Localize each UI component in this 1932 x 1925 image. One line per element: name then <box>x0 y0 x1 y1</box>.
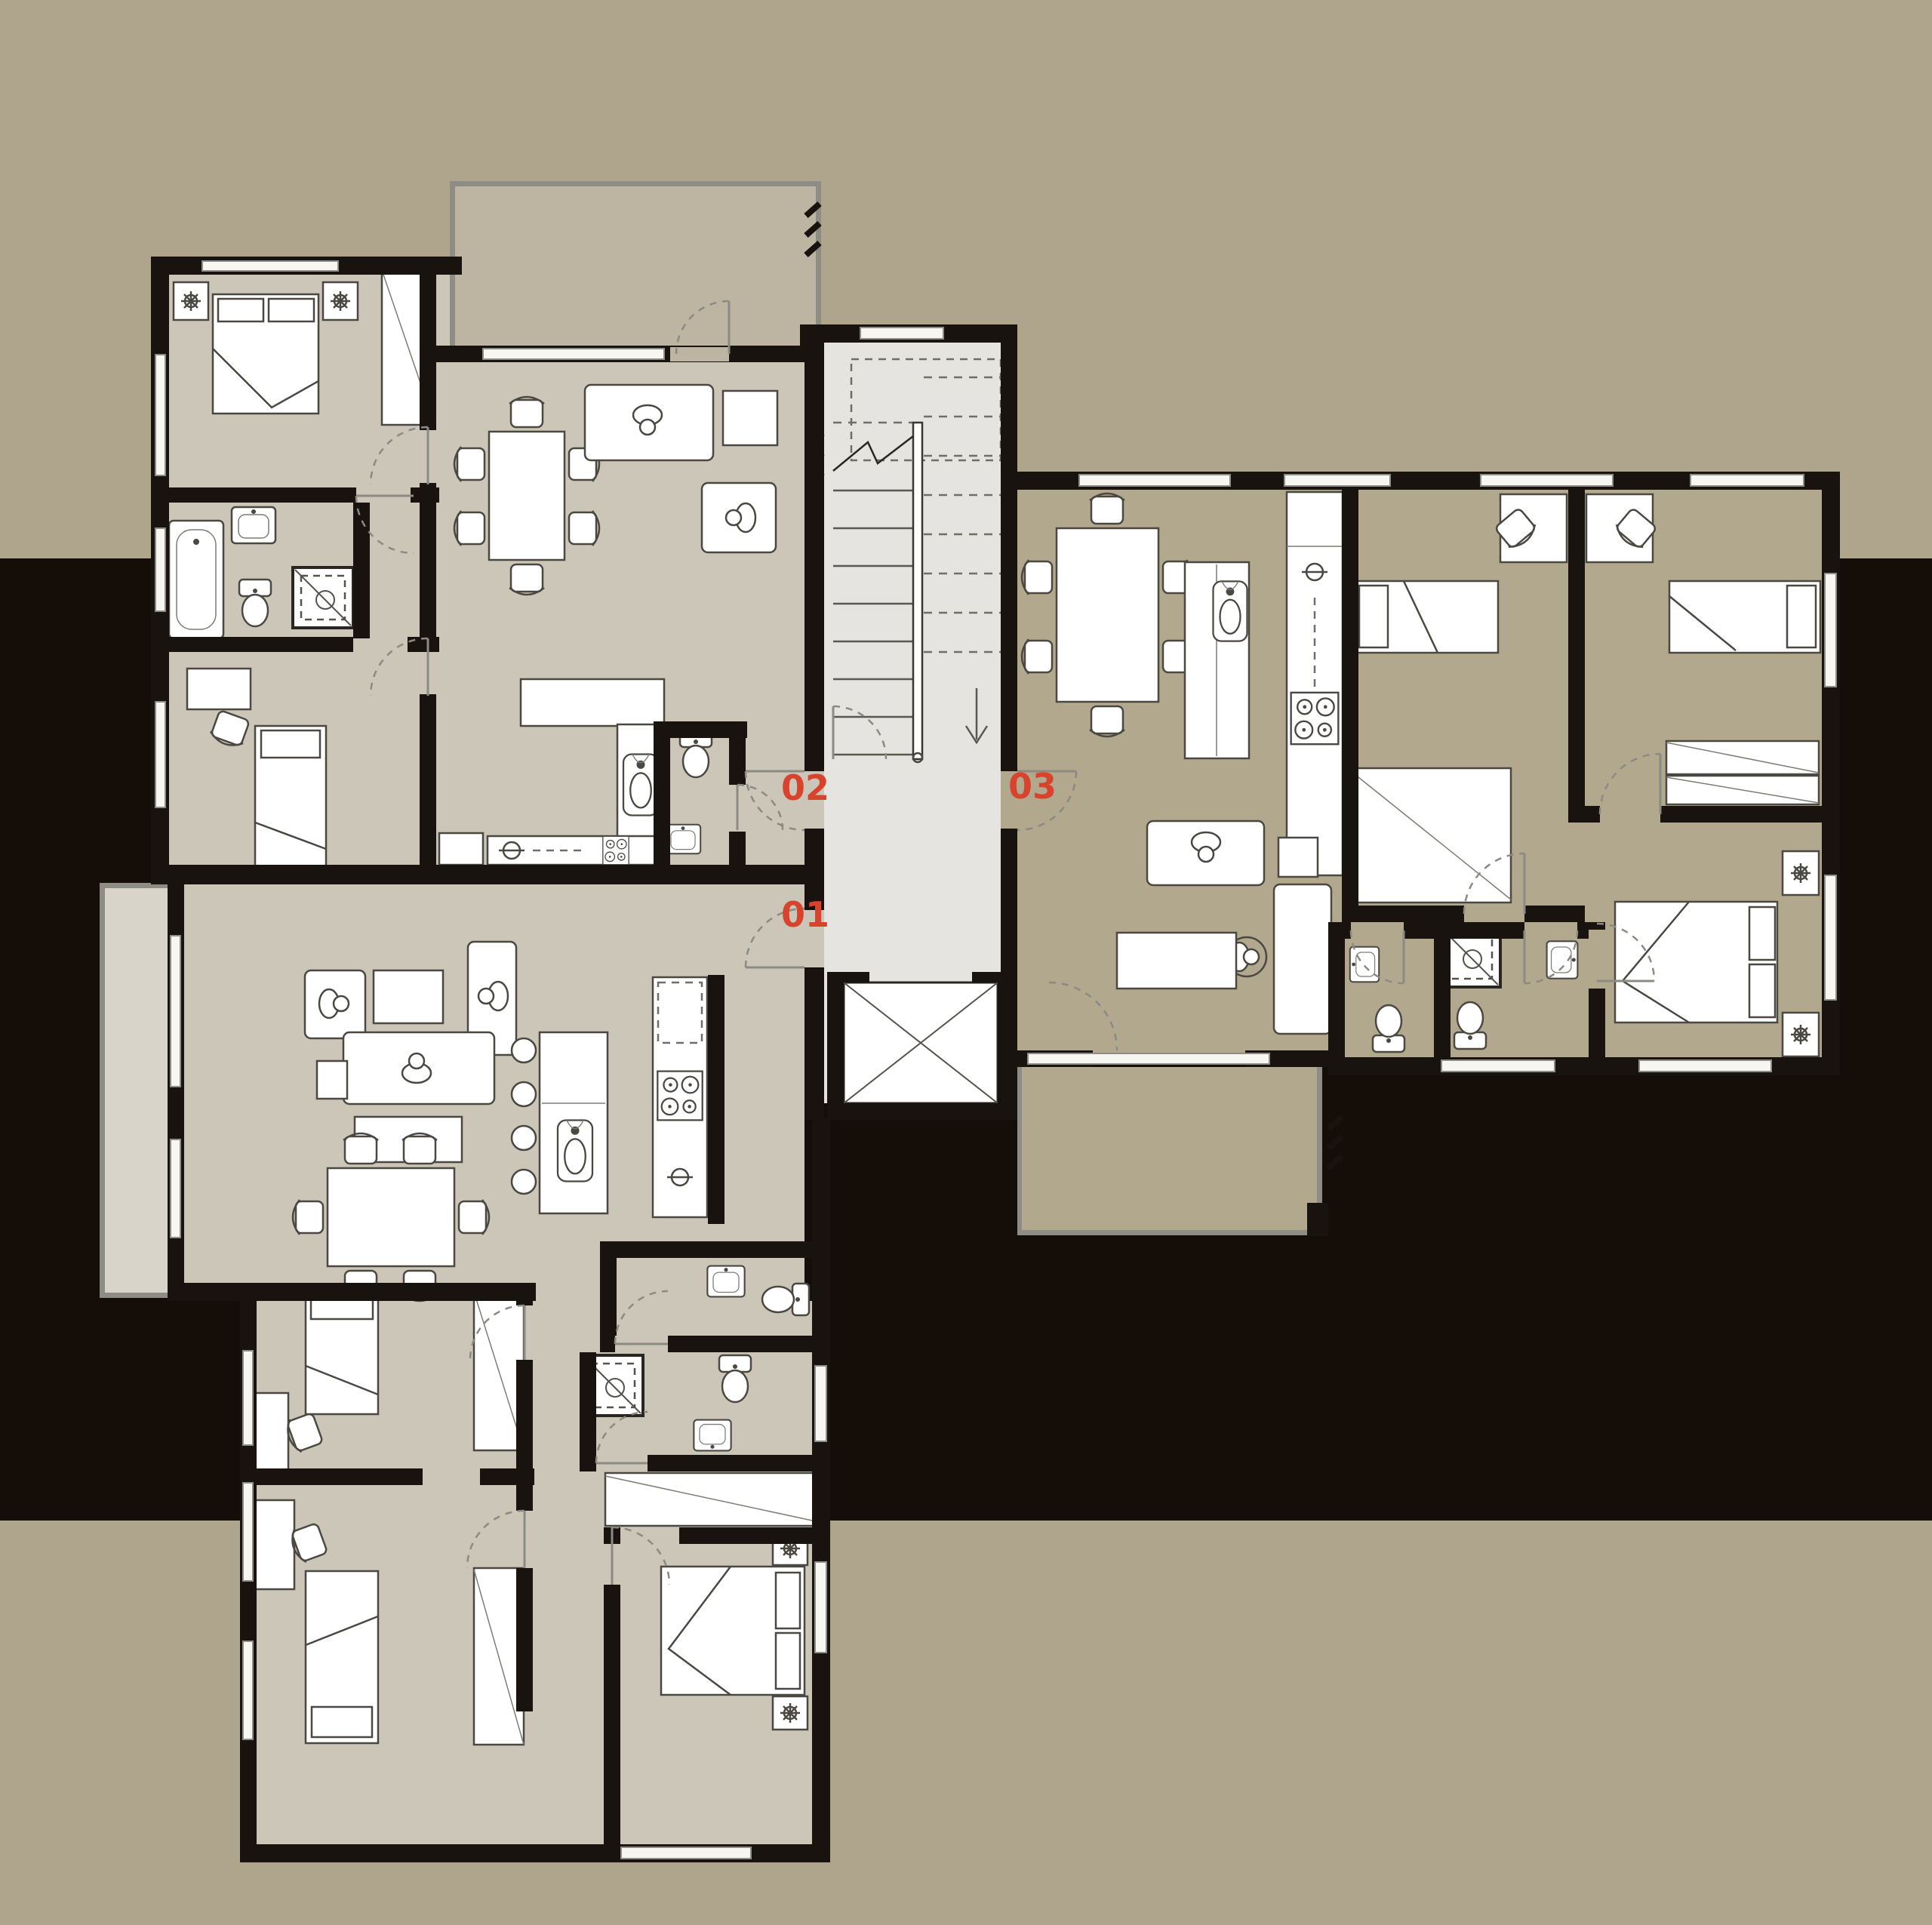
side-table <box>317 1061 347 1099</box>
sink-icon <box>1350 947 1379 982</box>
tv-table <box>374 970 443 1023</box>
side-table <box>723 391 777 445</box>
single-bed-icon <box>255 726 326 871</box>
wardrobe-icon <box>1351 768 1511 903</box>
toilet-icon <box>1373 1005 1404 1052</box>
chair-icon <box>454 447 485 481</box>
single-bed-icon <box>306 1287 378 1414</box>
stove-icon <box>1291 693 1339 744</box>
elevator <box>844 982 998 1103</box>
double-bed-icon <box>661 1567 804 1695</box>
toilet-icon <box>239 580 271 626</box>
chair-icon <box>459 1200 489 1235</box>
chair-icon <box>1022 639 1052 674</box>
unit-02-bedroom-1 <box>174 270 435 425</box>
stove-icon <box>603 836 629 864</box>
chair-icon <box>509 397 544 427</box>
chair-icon <box>293 1200 323 1235</box>
double-bed-icon <box>1615 902 1777 1022</box>
unit-03-terrace-floor <box>1017 1067 1322 1235</box>
kitchen-island <box>521 679 664 726</box>
sink-icon <box>707 1266 744 1297</box>
desk <box>187 669 251 709</box>
chair-icon <box>569 511 599 546</box>
wardrobe-icon <box>1666 741 1819 804</box>
single-bed-icon <box>1355 581 1498 653</box>
floor-plan-page: 02 03 01 <box>0 0 1932 1925</box>
bathtub-icon <box>169 521 223 638</box>
tv-bench <box>1117 933 1236 989</box>
single-bed-icon <box>1669 581 1820 653</box>
toilet-icon <box>762 1284 809 1315</box>
unit-02-balcony-floor <box>450 186 817 346</box>
chair-icon <box>343 1133 378 1164</box>
desk <box>254 1500 294 1589</box>
dining-table <box>328 1168 454 1266</box>
sink-icon <box>232 507 275 543</box>
floor-plan-drawing: 02 03 01 <box>0 0 1932 1925</box>
sink-icon <box>666 825 700 853</box>
wardrobe-icon <box>605 1473 823 1526</box>
sink-icon <box>694 1420 731 1451</box>
stair-divider <box>913 423 922 759</box>
kitchen-sink-icon <box>558 1121 592 1182</box>
single-bed-icon <box>306 1571 378 1743</box>
kitchen-sink-icon <box>623 755 658 816</box>
side-table <box>1278 838 1318 877</box>
sofa <box>1274 884 1331 1034</box>
dining-table <box>489 432 565 560</box>
stove-icon <box>657 1072 702 1121</box>
chair-icon <box>1090 494 1124 524</box>
kitchen-sink-icon <box>1214 581 1247 641</box>
unit-01-balcony-floor <box>100 883 178 1298</box>
dining-table <box>1057 528 1158 702</box>
stool-icon <box>512 1038 536 1062</box>
unit-01-label: 01 <box>781 894 829 935</box>
appliance <box>439 833 483 865</box>
chair-icon <box>402 1133 437 1164</box>
double-bed-icon <box>213 294 318 414</box>
chair-icon <box>454 511 485 546</box>
stool-icon <box>512 1126 536 1150</box>
toilet-icon <box>719 1355 751 1402</box>
chair-icon <box>509 564 544 595</box>
chair-icon <box>1090 706 1124 736</box>
toilet-icon <box>1454 1002 1486 1049</box>
sink-icon <box>1547 941 1578 978</box>
shower-icon <box>293 567 353 628</box>
stool-icon <box>512 1082 536 1106</box>
unit-02-label: 02 <box>781 767 829 808</box>
unit-03-label: 03 <box>1008 766 1057 807</box>
chair-icon <box>1022 560 1052 595</box>
stool-icon <box>512 1170 536 1194</box>
